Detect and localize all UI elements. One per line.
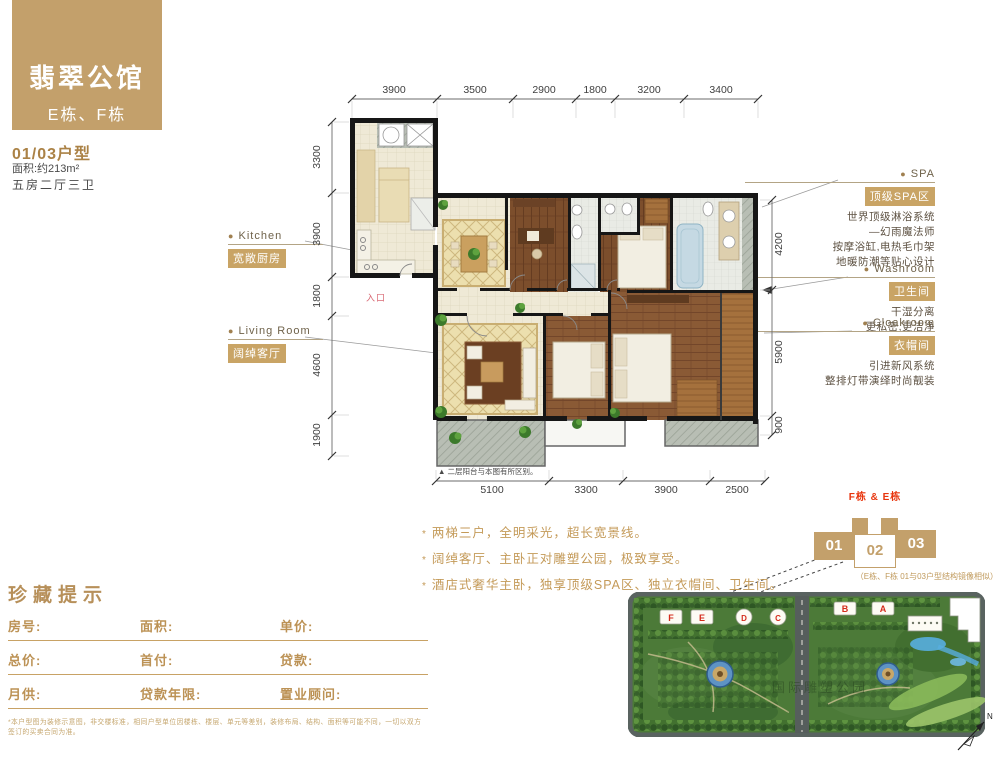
project-title: 翡翠公馆 — [12, 58, 162, 95]
dim-top-2: 3500 — [445, 84, 505, 96]
cloakroom-label-en: Cloakroom — [873, 317, 935, 329]
bldg-letter-A: A — [880, 604, 887, 614]
watermark: 国际雕塑公园 — [772, 680, 868, 695]
dim-top-5: 3200 — [619, 84, 679, 96]
plaza-left — [707, 661, 733, 687]
room-study — [510, 197, 568, 292]
living-sofa — [523, 348, 536, 398]
unit-02: 02 — [854, 534, 896, 568]
spa-label-en: SPA — [911, 168, 935, 180]
dim-bottom-1: 5100 — [462, 484, 522, 496]
balcony-master — [665, 420, 758, 446]
plaza-right — [877, 663, 899, 685]
dim-right-2: 5900 — [773, 322, 785, 382]
kitchen-label-en: Kitchen — [239, 230, 283, 242]
bldg-letter-C: C — [775, 614, 781, 623]
kitchen-label: ● Kitchen 宽敞厨房 — [228, 230, 323, 268]
washroom-badge: 卫生间 — [889, 282, 935, 301]
living-label: ● Living Room 阔绰客厅 — [228, 325, 323, 363]
room-bath2 — [598, 197, 638, 235]
dim-right-1: 4200 — [773, 214, 785, 274]
form-row-1: 房号: 面积: 单价: — [8, 607, 428, 641]
dim-left-1: 3300 — [311, 127, 323, 187]
dim-left-4: 4600 — [311, 335, 323, 395]
dim-top-1: 3900 — [364, 84, 424, 96]
unit-rooms: 五房二厅三卫 — [12, 176, 96, 193]
dim-left-3: 1800 — [311, 266, 323, 326]
diagram-caption: （E栋、F栋 01与03户型结构镜像相似） — [842, 571, 998, 582]
unit-area: 面积:约213m² — [12, 160, 79, 176]
floorplan — [315, 80, 785, 500]
field-loan: 贷款: — [280, 650, 313, 669]
field-unit-price: 单价: — [280, 616, 313, 635]
compass-icon: N — [950, 706, 996, 760]
building-diagram: F栋 & E栋 01 03 02 — [812, 488, 938, 568]
dim-top-6: 3400 — [691, 84, 751, 96]
spa-dot-icon: ● — [900, 169, 906, 179]
collection-form: 珍藏提示 房号: 面积: 单价: 总价: 首付: 贷款: 月供: 贷款年限: 置… — [8, 580, 428, 736]
field-consultant: 置业顾问: — [280, 684, 341, 703]
bldg-letter-F: F — [668, 613, 674, 623]
maid-bed — [379, 168, 409, 222]
rooms — [355, 122, 758, 420]
dim-left-5: 1900 — [311, 405, 323, 465]
balcony-note: ▲ 二层阳台与本图有所区别。 — [438, 466, 538, 477]
unit-01: 01 — [814, 532, 854, 560]
field-area: 面积: — [140, 616, 173, 635]
living-label-en: Living Room — [239, 325, 311, 337]
building-diagram-label: F栋 & E栋 — [812, 488, 938, 503]
washroom-label-en: Washroom — [874, 263, 935, 275]
field-loan-term: 贷款年限: — [140, 684, 201, 703]
kitchen-dot-icon: ● — [228, 231, 234, 241]
building-shape: 01 03 02 — [812, 506, 938, 568]
project-brand-box: 翡翠公馆 E栋、F栋 — [12, 0, 162, 130]
form-row-2: 总价: 首付: 贷款: — [8, 641, 428, 675]
bldg-letter-B: B — [842, 604, 849, 614]
balconies — [437, 420, 758, 466]
unit-03: 03 — [896, 530, 936, 558]
washroom-dot-icon: ● — [864, 264, 870, 274]
field-down-payment: 首付: — [140, 650, 173, 669]
cloakroom-dot-icon: ● — [862, 318, 868, 328]
bullet-icon: * — [422, 555, 427, 566]
feature-item: *酒店式奢华主卧，独享顶级SPA区、独立衣帽间、卫生间。 — [422, 574, 783, 593]
bldg-letter-E: E — [699, 613, 705, 623]
siteplan: F E D C B A — [628, 592, 985, 737]
feature-item: *两梯三户，全明采光，超长宽景线。 — [422, 522, 783, 541]
bullet-icon: * — [422, 529, 427, 540]
cloakroom-badge: 衣帽间 — [889, 336, 935, 355]
kitchen-badge: 宽敞厨房 — [228, 249, 286, 268]
master-tv-cabinet — [627, 295, 689, 303]
living-badge: 阔绰客厅 — [228, 344, 286, 363]
dim-top-4: 1800 — [565, 84, 625, 96]
field-total-price: 总价: — [8, 650, 41, 669]
dim-bottom-3: 3900 — [636, 484, 696, 496]
living-dot-icon: ● — [228, 326, 234, 336]
feature-item: *阔绰客厅、主卧正对雕塑公园，极致享受。 — [422, 548, 783, 567]
building-subtitle: E栋、F栋 — [12, 101, 162, 125]
bldg-letter-D: D — [741, 614, 747, 623]
field-room-no: 房号: — [8, 616, 41, 635]
feature-list: *两梯三户，全明采光，超长宽景线。 *阔绰客厅、主卧正对雕塑公园，极致享受。 *… — [422, 522, 783, 600]
dim-right-3: 900 — [773, 395, 785, 455]
spa-badge: 顶级SPA区 — [865, 187, 935, 206]
form-row-3: 月供: 贷款年限: 置业顾问: — [8, 675, 428, 709]
field-monthly-payment: 月供: — [8, 684, 41, 703]
cloakroom-wardrobe — [721, 294, 757, 418]
dim-left-2: 3900 — [311, 204, 323, 264]
collection-title: 珍藏提示 — [8, 580, 428, 607]
entrance-label: 入口 — [366, 291, 386, 304]
dim-bottom-4: 2500 — [707, 484, 767, 496]
disclaimer: *本户型图为装修示意图，非交楼标准，相同户型单位因楼栋、楼层、单元等差别，装修布… — [8, 716, 428, 736]
compass-n: N — [987, 712, 993, 721]
dim-bottom-2: 3300 — [556, 484, 616, 496]
balcony-mid — [545, 420, 625, 446]
flyer-page: 翡翠公馆 E栋、F栋 01/03户型 面积:约213m² 五房二厅三卫 ● Ki… — [0, 0, 1000, 762]
